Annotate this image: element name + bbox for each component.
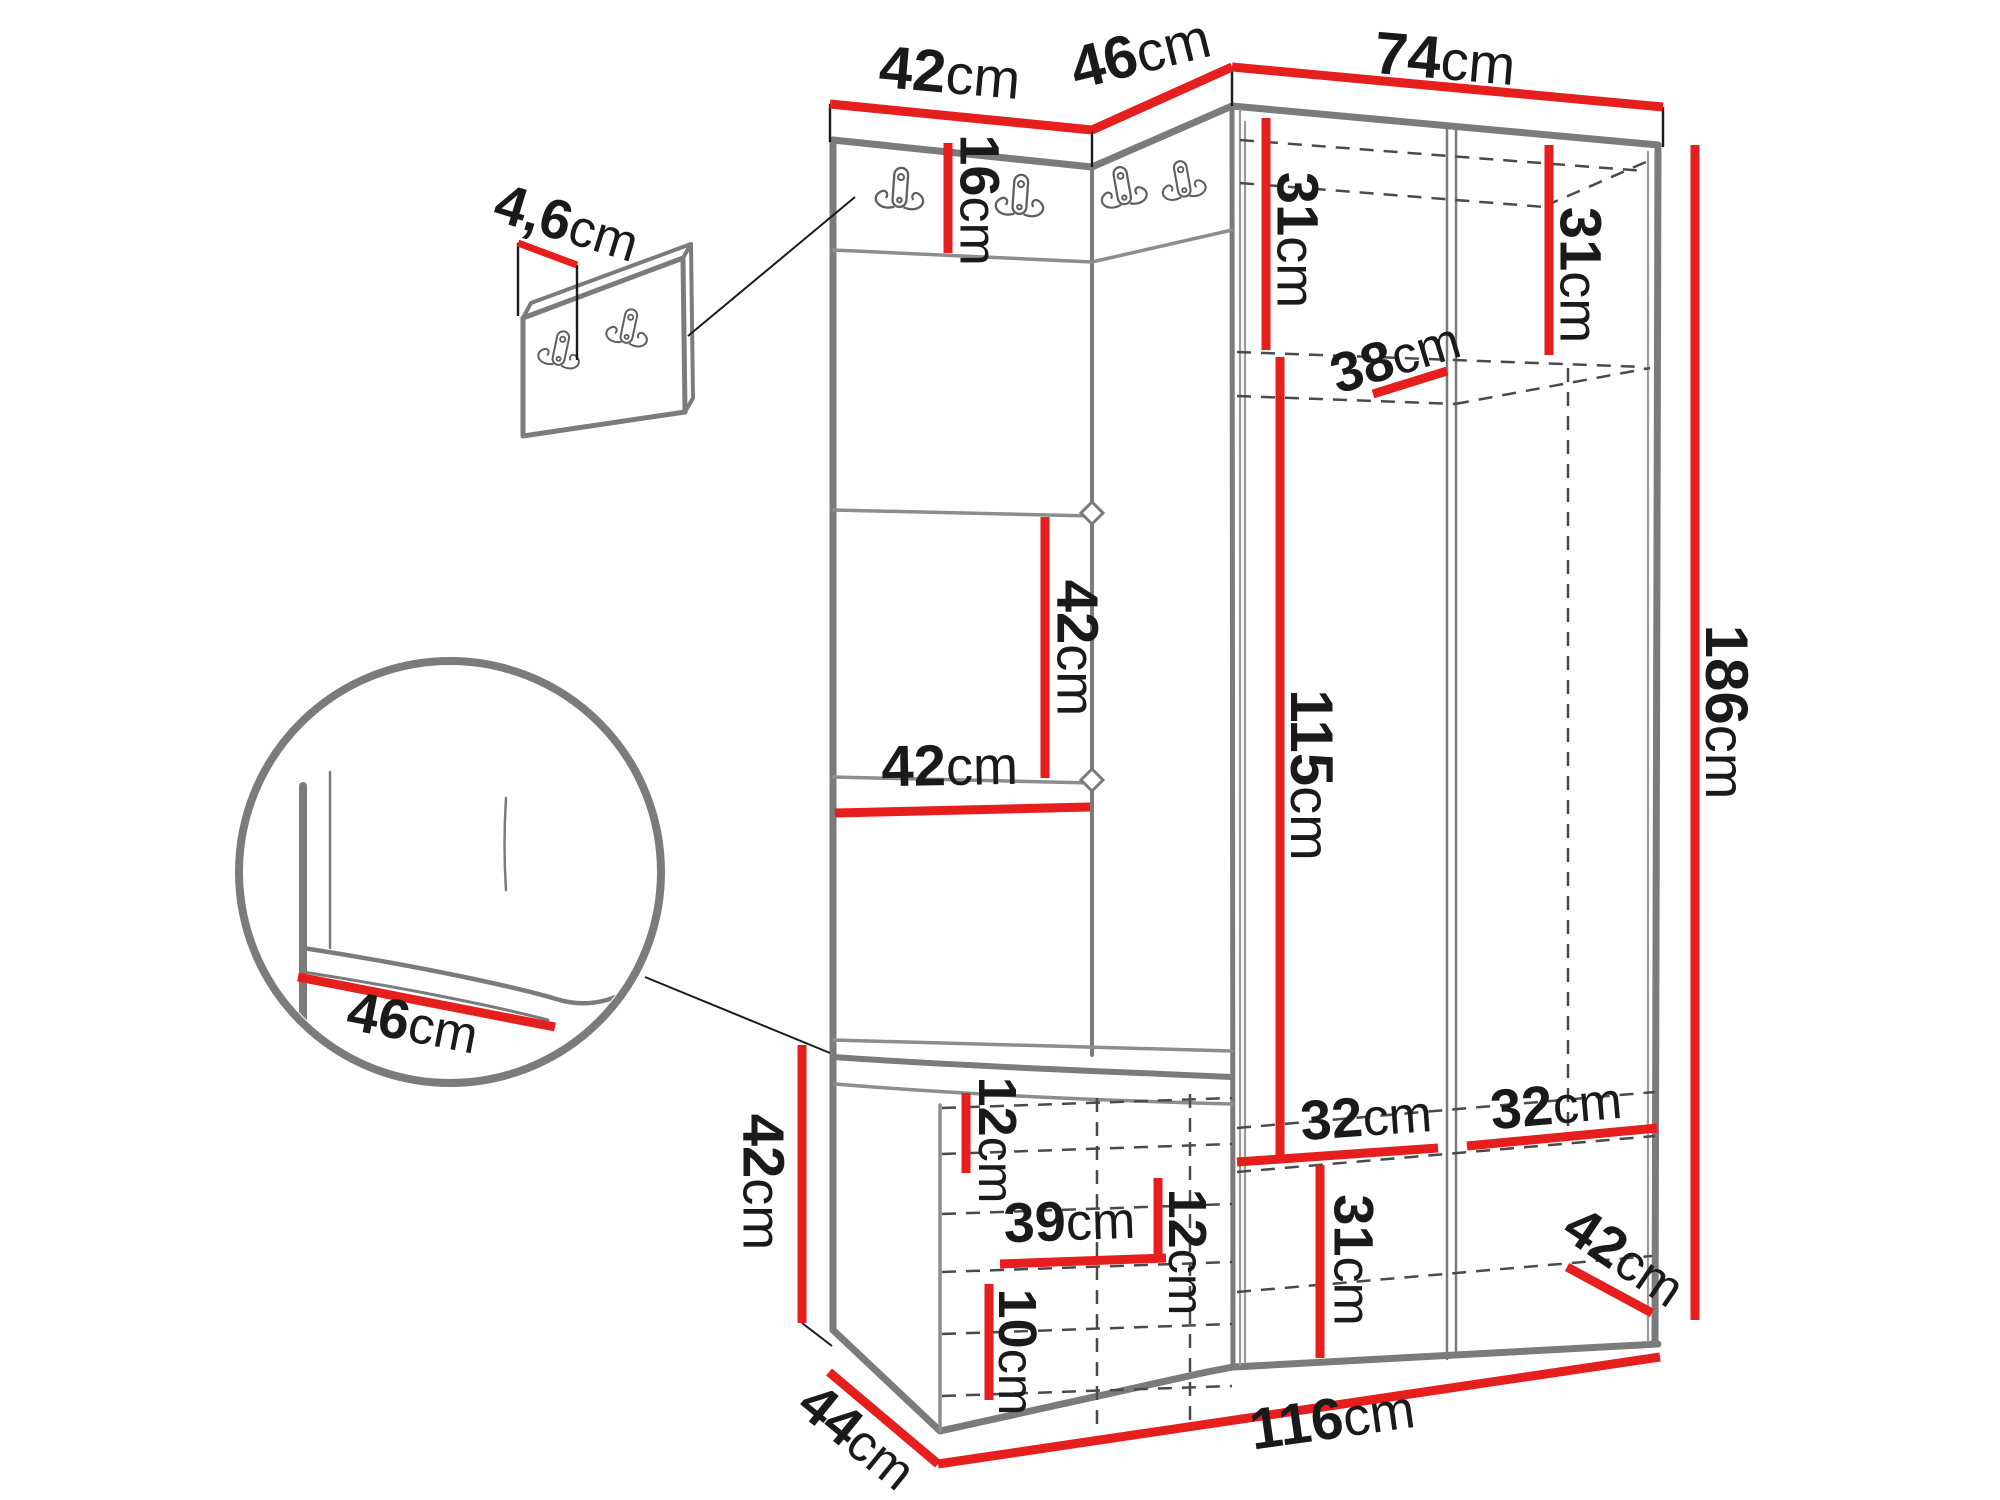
dim-label-wardrobe-31-right: 31cm [1548, 207, 1613, 344]
dim-label-bottom-31: 31cm [1322, 1194, 1385, 1326]
dim-label-bench-39: 39cm [1002, 1187, 1136, 1255]
dim-label-bench-12-mid: 12cm [1157, 1189, 1217, 1316]
dim-label-section-42: 42cm [1045, 580, 1110, 717]
seam-diamond-1 [1081, 502, 1103, 524]
wardrobe-top-dash-1 [1240, 140, 1645, 171]
dim-label-wardrobe-31-left: 31cm [1265, 172, 1330, 309]
detail-seat-right-edge [640, 978, 646, 1038]
dim-label-top-42: 42cm [877, 33, 1024, 112]
ext-bench-height [802, 1323, 832, 1346]
bench-cushion-bottom-edge [835, 1084, 1232, 1104]
hook-panel-detail [523, 244, 693, 436]
panel-seam-1 [833, 510, 1092, 516]
double-hook-icon [1158, 158, 1207, 202]
dim-line-top-42 [830, 104, 1092, 130]
dim-label-shelf-32-right: 32cm [1488, 1067, 1625, 1141]
dim-label-panel-42: 42cm [881, 732, 1019, 799]
double-hook-icon [875, 166, 925, 210]
dim-label-shelf-32-left: 32cm [1298, 1080, 1434, 1152]
dim-label-bench-10: 10cm [987, 1289, 1047, 1416]
dim-label-total-186: 186cm [1693, 625, 1760, 800]
dim-label-total-116: 116cm [1246, 1375, 1419, 1462]
dim-label-bench-42: 42cm [731, 1114, 796, 1251]
seam-diamond-2 [1081, 769, 1103, 791]
dim-line-bench-39 [1000, 1258, 1166, 1264]
dim-label-bench-12-top: 12cm [967, 1077, 1027, 1204]
shelf-dash-3 [1455, 368, 1650, 404]
callout-circle-to-bench [645, 977, 830, 1053]
main-unit-hooks [875, 158, 1207, 218]
dim-label-middle-115: 115cm [1278, 689, 1345, 860]
dim-line-panel-42-horizontal [835, 807, 1090, 813]
hook-row-bottom-seam [833, 230, 1232, 262]
furniture-dimension-diagram: 42cm 46cm 74cm 4,6cm 16cm 31cm 31cm 38cm… [0, 0, 2000, 1500]
bench-seat-back-edge [833, 1040, 1232, 1051]
dim-label-hookrow-16: 16cm [948, 134, 1011, 266]
dim-label-top-74: 74cm [1372, 19, 1519, 98]
diagram-page: 42cm 46cm 74cm 4,6cm 16cm 31cm 31cm 38cm… [0, 0, 2000, 1500]
wardrobe-left-edge [1232, 106, 1233, 1367]
bench-seat-front-edge [833, 1057, 1232, 1077]
dim-line-shelf-32-left [1237, 1148, 1438, 1162]
wardrobe-right-edge [1655, 145, 1658, 1344]
double-hook-icon [1097, 163, 1148, 209]
